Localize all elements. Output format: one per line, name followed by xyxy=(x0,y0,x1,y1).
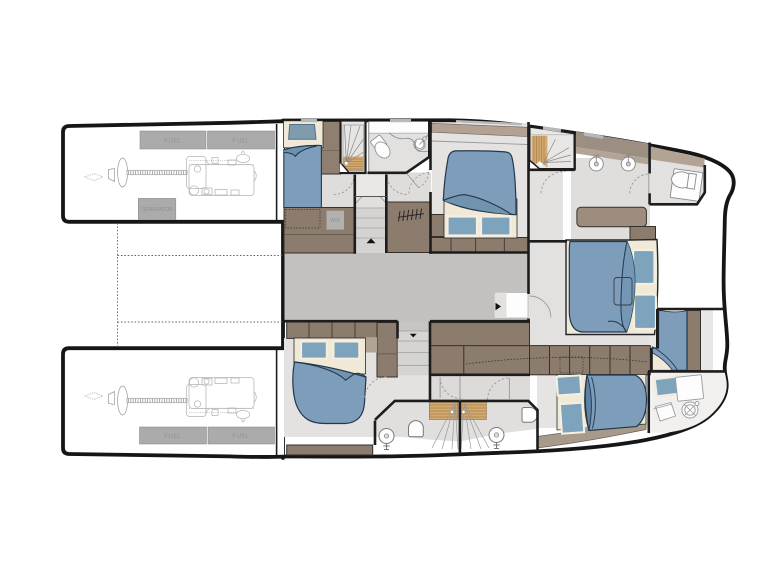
svg-text:FUEL: FUEL xyxy=(232,137,250,144)
svg-text:FUEL: FUEL xyxy=(232,433,250,440)
svg-text:FUEL: FUEL xyxy=(164,433,182,440)
svg-text:GENERATOR: GENERATOR xyxy=(141,207,173,213)
svg-text:W/D: W/D xyxy=(330,218,340,224)
svg-text:FUEL: FUEL xyxy=(164,137,182,144)
